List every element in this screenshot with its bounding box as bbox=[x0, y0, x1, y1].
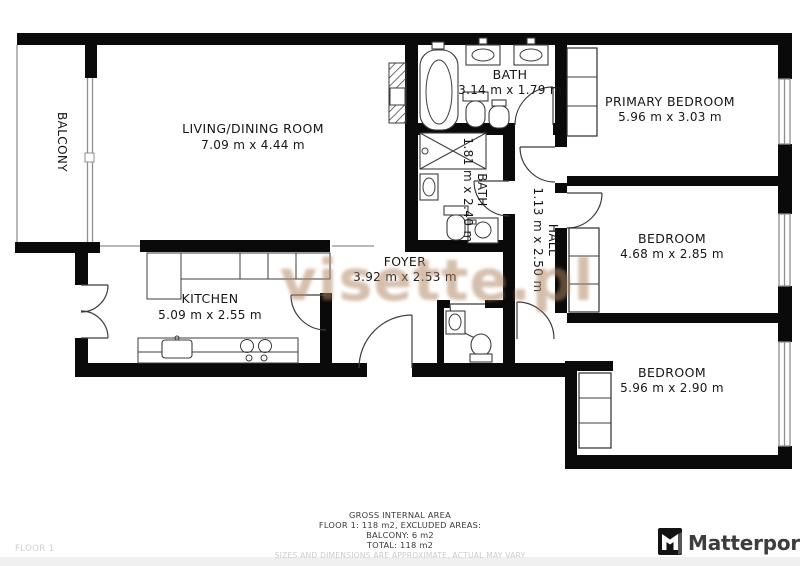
brand-name: Matterport bbox=[688, 531, 800, 555]
wc-toilet bbox=[470, 334, 492, 362]
bidet bbox=[489, 100, 509, 128]
door-entrance bbox=[359, 315, 412, 368]
wall-kitchen-left-bottom bbox=[75, 338, 88, 377]
bedroom-bottom-label: BEDROOM bbox=[638, 365, 706, 380]
shaft-box bbox=[390, 88, 405, 105]
wall-kitchen-bottom bbox=[75, 363, 367, 377]
bath-second-dims: 1.81 m x 2.40 m bbox=[461, 137, 475, 242]
area-line3: TOTAL: 118 m2 bbox=[366, 540, 433, 550]
bath-second-label: BATH bbox=[475, 173, 489, 206]
wall-wc-right bbox=[503, 308, 515, 363]
floor-label: FLOOR 1 bbox=[15, 544, 55, 554]
wall-hall-right-1 bbox=[555, 135, 567, 147]
watermark: visette.pl bbox=[280, 248, 594, 314]
wc-fixtures bbox=[446, 311, 492, 362]
bathtub-tap bbox=[432, 42, 444, 49]
toilet bbox=[463, 92, 488, 127]
kitchen-sink bbox=[162, 336, 192, 358]
kitchen-dims: 5.09 m x 2.55 m bbox=[158, 308, 262, 322]
area-line2: BALCONY: 6 m2 bbox=[366, 530, 434, 540]
wall-living-west-stub bbox=[85, 45, 97, 78]
primary-bedroom-dims: 5.96 m x 3.03 m bbox=[618, 110, 722, 124]
floor-plan-canvas: LIVING/DINING ROOM 7.09 m x 4.44 m KITCH… bbox=[0, 0, 800, 566]
wardrobe-bedroom-bottom bbox=[579, 373, 611, 448]
wall-top bbox=[17, 33, 792, 45]
window-bedroom-mid bbox=[779, 214, 790, 286]
kitchen-label: KITCHEN bbox=[182, 291, 239, 306]
area-summary: GROSS INTERNAL AREA FLOOR 1: 118 m2, EXC… bbox=[275, 510, 526, 560]
door-bedroom-mid bbox=[567, 193, 602, 228]
living-room-dims: 7.09 m x 4.44 m bbox=[201, 138, 305, 152]
disclaimer: SIZES AND DIMENSIONS ARE APPROXIMATE, AC… bbox=[275, 551, 526, 560]
bath-main-dims: 3.14 m x 1.79 m bbox=[458, 83, 562, 97]
brand-logo: Matterport bbox=[658, 528, 800, 555]
cooktop bbox=[241, 340, 272, 362]
bedroom-bottom-dims: 5.96 m x 2.90 m bbox=[620, 381, 724, 395]
wall-bath-bottom-2 bbox=[553, 123, 567, 135]
wall-bedroom-left bbox=[565, 375, 577, 465]
wall-primary-mid bbox=[567, 176, 792, 186]
wc-sink bbox=[446, 311, 465, 334]
wall-stub bbox=[565, 361, 613, 371]
tall-cabinet bbox=[147, 253, 181, 299]
window-bedroom-bottom bbox=[779, 342, 790, 446]
wall-right-1 bbox=[778, 45, 792, 79]
sink-small bbox=[420, 174, 438, 200]
door-primary-bedroom bbox=[520, 147, 555, 182]
shower bbox=[420, 133, 486, 169]
shaft bbox=[389, 63, 406, 123]
wall-mid-bottom bbox=[567, 313, 792, 323]
wall-bath-left bbox=[405, 45, 418, 252]
primary-bedroom-label: PRIMARY BEDROOM bbox=[605, 94, 735, 109]
floor-plan-page: LIVING/DINING ROOM 7.09 m x 4.44 m KITCH… bbox=[0, 0, 800, 566]
window-primary bbox=[779, 79, 790, 144]
balcony-label: BALCONY bbox=[55, 112, 69, 172]
glazing-junction bbox=[85, 153, 94, 162]
wall-bottom-bedroom bbox=[565, 455, 792, 469]
wardrobe-primary bbox=[567, 48, 597, 136]
wall-balcony-bottom bbox=[15, 242, 100, 253]
wall-hall-right-2 bbox=[555, 183, 567, 193]
wall-foyer-bottom bbox=[412, 363, 577, 377]
matterport-logo-icon bbox=[658, 528, 682, 555]
door-kitchen-double bbox=[81, 285, 108, 338]
bedroom-mid-dims: 4.68 m x 2.85 m bbox=[620, 247, 724, 261]
bedroom-mid-label: BEDROOM bbox=[638, 231, 706, 246]
area-line1: FLOOR 1: 118 m2, EXCLUDED AREAS: bbox=[319, 520, 481, 530]
wall-hall-left-1 bbox=[503, 135, 515, 181]
living-room-label: LIVING/DINING ROOM bbox=[182, 121, 324, 136]
doors bbox=[81, 87, 602, 368]
bath-main-label: BATH bbox=[493, 67, 528, 82]
area-title: GROSS INTERNAL AREA bbox=[349, 510, 451, 520]
balcony-glazing bbox=[85, 78, 94, 242]
